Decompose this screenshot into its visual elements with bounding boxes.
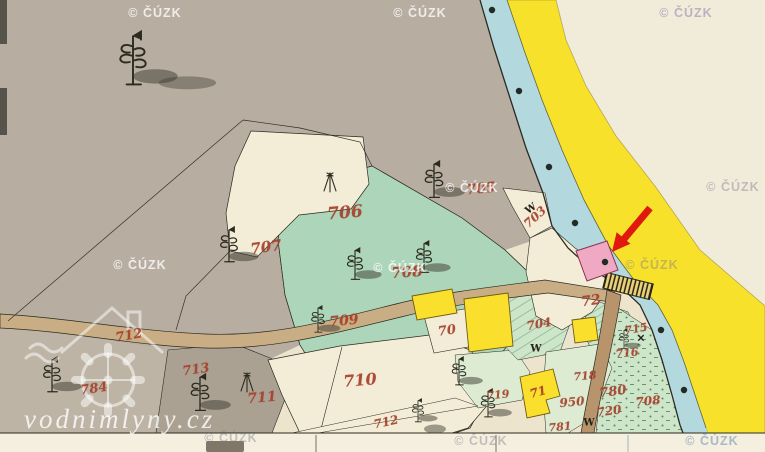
ink-smudge	[424, 425, 446, 434]
cadastral-map-viewport[interactable]: 7067057077087097037070472712713711710784…	[0, 0, 765, 452]
sheet-margin	[0, 434, 765, 452]
map-canvas	[0, 0, 765, 452]
parcel-713-area	[156, 344, 287, 433]
